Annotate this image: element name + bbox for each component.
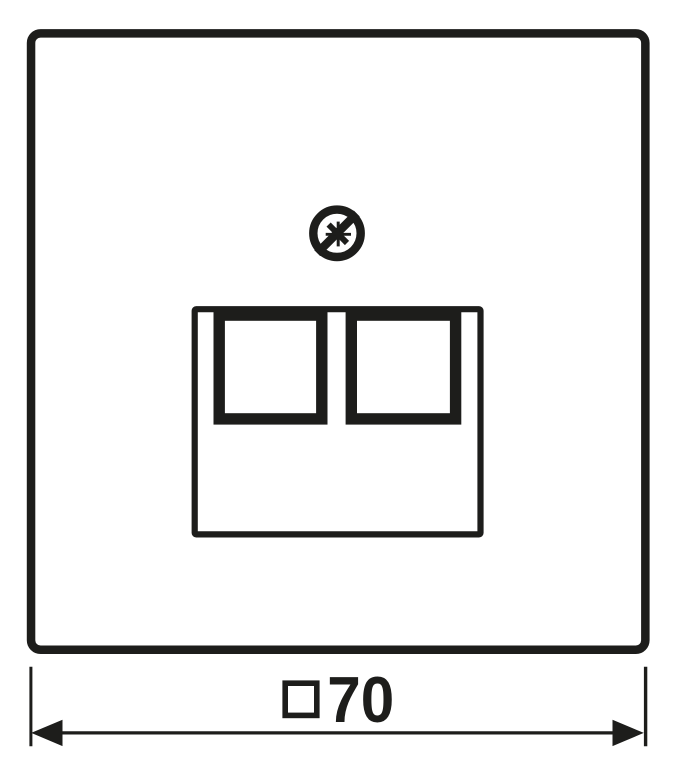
svg-text:70: 70 [327, 664, 394, 736]
